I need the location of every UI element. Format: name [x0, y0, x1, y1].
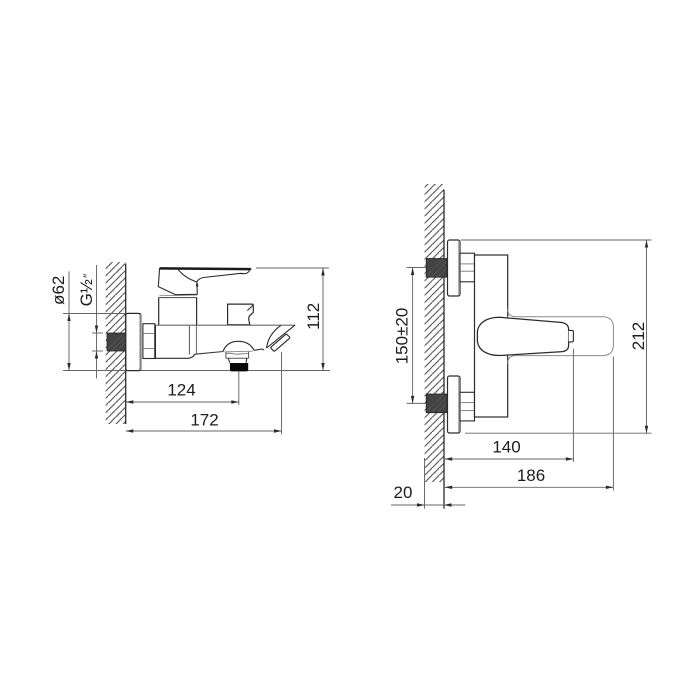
svg-text:150±20: 150±20	[393, 308, 412, 365]
svg-text:20: 20	[394, 483, 413, 502]
svg-text:186: 186	[517, 466, 545, 485]
svg-text:212: 212	[629, 322, 648, 350]
svg-text:140: 140	[492, 438, 520, 457]
svg-text:ø62: ø62	[49, 276, 68, 305]
svg-text:124: 124	[167, 381, 195, 400]
svg-text:172: 172	[190, 411, 218, 430]
svg-text:112: 112	[304, 303, 323, 330]
